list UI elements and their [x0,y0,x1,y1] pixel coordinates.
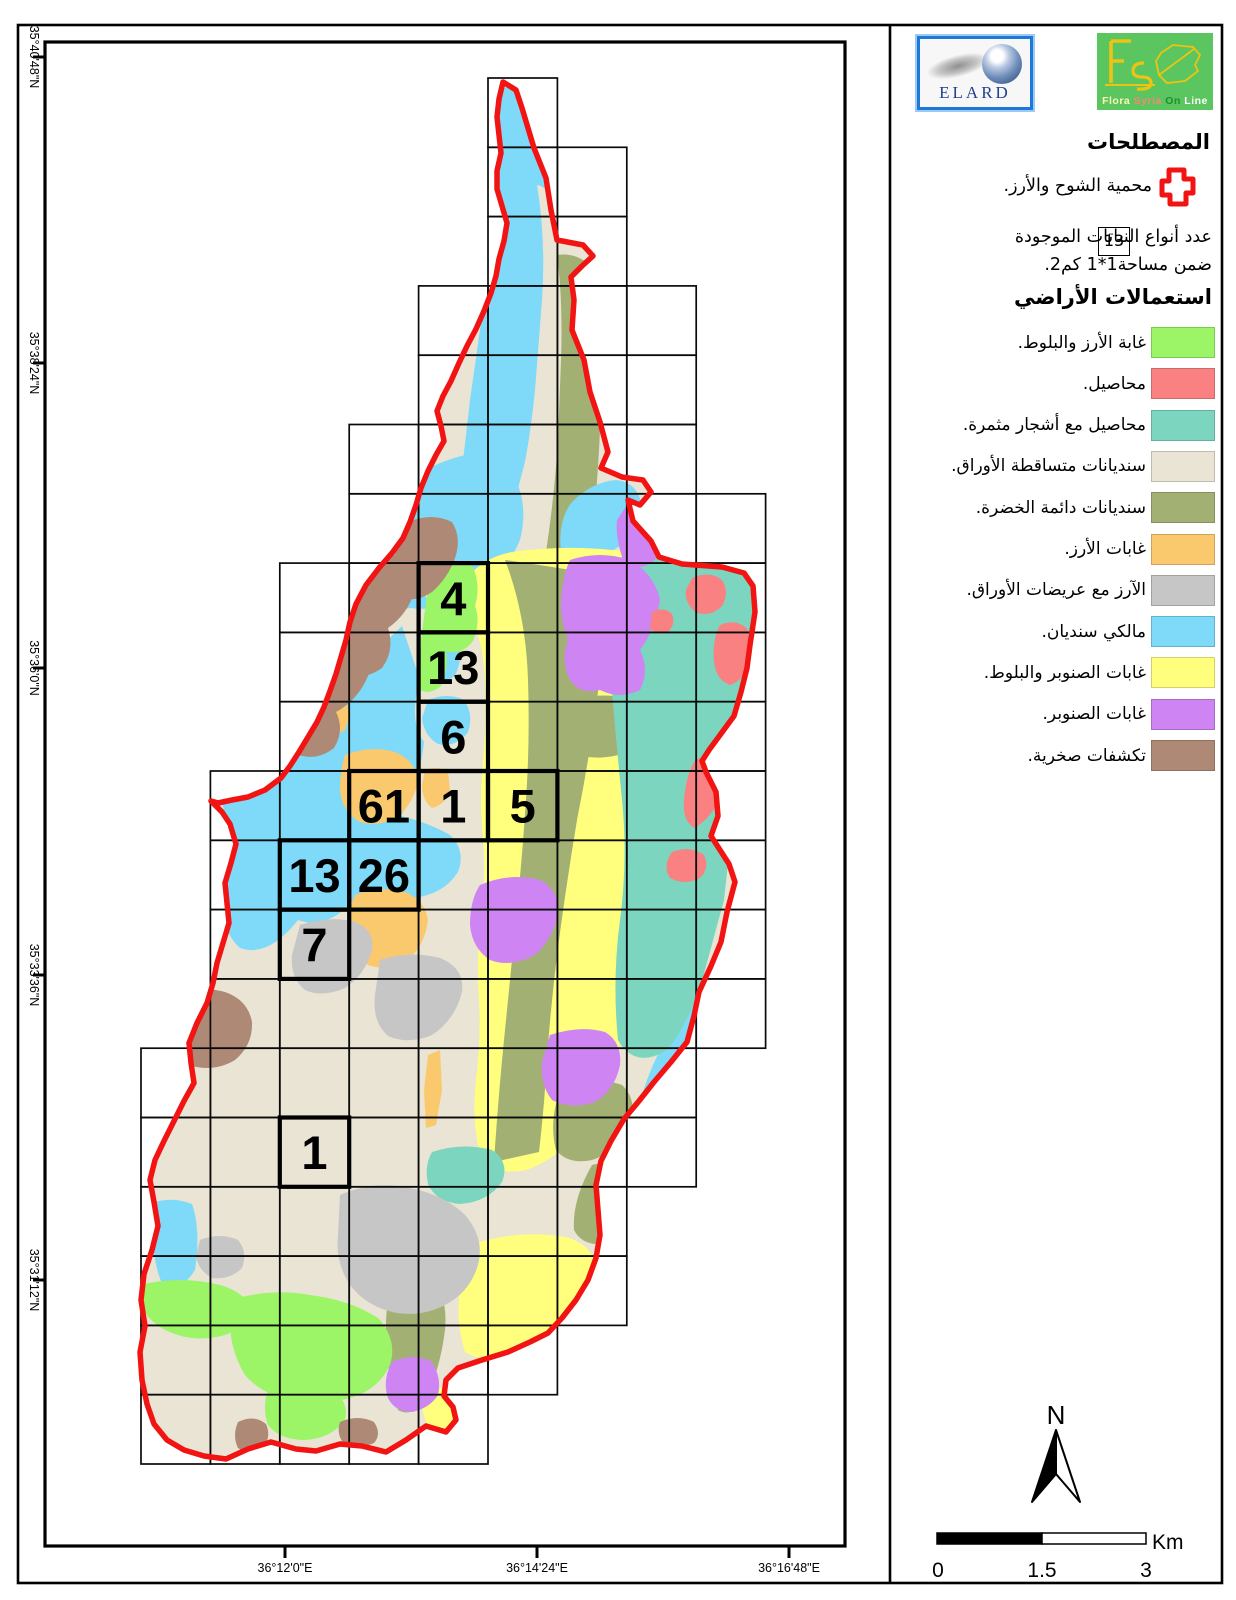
legend-item: غابات الصنوبر. [1043,699,1215,730]
landuse-polygon [254,654,301,693]
legend-swatch [1151,657,1215,688]
latitude-label: 35°38'24"N [27,332,41,395]
legend-swatch [1151,327,1215,358]
north-label: N [1047,1400,1066,1430]
species-count-line1: عدد أنواع النباتات الموجودة [930,227,1212,247]
legend-item: غابات الصنوبر والبلوط. [984,657,1215,688]
latitude-label: 35°36'0"N [27,640,41,696]
grid-cell [627,286,696,355]
scale-middle: 1.5 [1027,1559,1056,1582]
reserve-boundary-icon [1156,166,1200,208]
legend-item: تكشفات صخرية. [1027,740,1215,771]
legend-title: المصطلحات [940,130,1210,154]
legend-swatch [1151,534,1215,565]
north-arrow: N [1032,1400,1080,1502]
legend-swatch [1151,368,1215,399]
legend-item: غابة الأرز والبلوط. [1018,327,1215,358]
north-arrow-left-icon [1032,1430,1056,1502]
legend-item: محاصيل مع أشجار مثمرة. [963,410,1215,441]
elard-sphere-icon [982,44,1022,84]
species-count-value: 7 [301,918,327,971]
longitude-label: 36°12'0"E [258,1561,313,1575]
legend-item: غابات الأرز. [1064,534,1215,565]
latitude-label: 35°31'12"N [27,1249,41,1312]
species-count-value: 5 [510,780,536,833]
legend-item-label: مالكي سنديان. [1041,622,1146,642]
legend-item: سنديانات دائمة الخضرة. [976,492,1215,523]
legend-item-label: سنديانات متساقطة الأوراق. [951,456,1146,476]
elard-logo: ELARD [917,36,1033,110]
scale-bar: Km 0 1.5 3 [932,1531,1183,1582]
latitude-label: 35°40'48"N [27,26,41,89]
landuse-polygon [650,609,673,633]
legend-swatch [1151,492,1215,523]
grid-cell [280,563,349,632]
legend-item-label: الآرز مع عريضات الأوراق. [966,580,1146,600]
legend-swatch [1151,575,1215,606]
legend-swatch [1151,451,1215,482]
scale-start: 0 [932,1559,944,1582]
species-count-value: 1 [440,780,466,833]
north-arrow-right-icon [1056,1430,1080,1502]
legend-item: مالكي سنديان. [1041,616,1215,647]
legend-swatch [1151,410,1215,441]
legend-item-label: تكشفات صخرية. [1027,746,1146,766]
legend-item-label: محاصيل. [1083,374,1146,394]
species-count-value: 61 [358,780,410,833]
scale-unit: Km [1152,1531,1184,1554]
legend-item-label: سنديانات دائمة الخضرة. [976,498,1146,518]
legend-item: الآرز مع عريضات الأوراق. [966,575,1215,606]
legend-item: سنديانات متساقطة الأوراق. [951,451,1215,482]
longitude-label: 36°14'24"E [506,1561,568,1575]
flora-word: Syria [1130,95,1162,107]
legend-item-label: غابات الصنوبر. [1043,704,1146,724]
scale-bar-white-segment [1042,1533,1146,1544]
species-count-value: 1 [301,1126,327,1179]
grid-cell [627,355,696,424]
flora-word: On [1162,95,1181,107]
scale-end: 3 [1140,1559,1152,1582]
legend-swatch [1151,616,1215,647]
flora-syria-artwork-icon [1097,33,1213,91]
legend-item-label: غابة الأرز والبلوط. [1018,333,1146,353]
latitude-label: 35°33'36"N [27,944,41,1007]
elard-logo-label: ELARD [920,83,1030,103]
species-count-value: 26 [358,849,410,902]
species-count-line2: ضمن مساحة1*1 كم2. [930,255,1212,275]
legend-item-label: غابات الأرز. [1064,539,1146,559]
grid-cell [627,1118,696,1187]
legend-item-label: محاصيل مع أشجار مثمرة. [963,415,1146,435]
legend-item-label: غابات الصنوبر والبلوط. [984,663,1146,683]
grid-cell [696,979,765,1048]
landuse-title: استعمالات الأراضي [940,285,1212,309]
longitude-label: 36°16'48"E [758,1561,820,1575]
species-count-value: 13 [288,849,340,902]
grid-cell [696,494,765,563]
legend-swatch [1151,699,1215,730]
reserve-label: محمية الشوح والأرز. [930,176,1152,196]
flora-logo-wordmark: Flora Syria On Line [1097,95,1213,107]
grid-cell [557,147,626,216]
legend-swatch [1151,740,1215,771]
legend-item: محاصيل. [1083,368,1215,399]
species-count-value: 6 [440,710,466,763]
flora-word: Line [1181,95,1208,107]
grid-cell [349,425,418,494]
species-count-value: 4 [440,572,466,625]
map-document-page: 41366115132671 35°40'48"N35°38'24"N35°36… [0,0,1236,1600]
flora-syria-logo: Flora Syria On Line [1097,33,1213,110]
flora-word: Flora [1102,95,1130,107]
landuse-polygon [666,849,706,882]
scale-bar-black-segment [937,1533,1042,1544]
species-count-value: 13 [427,641,479,694]
